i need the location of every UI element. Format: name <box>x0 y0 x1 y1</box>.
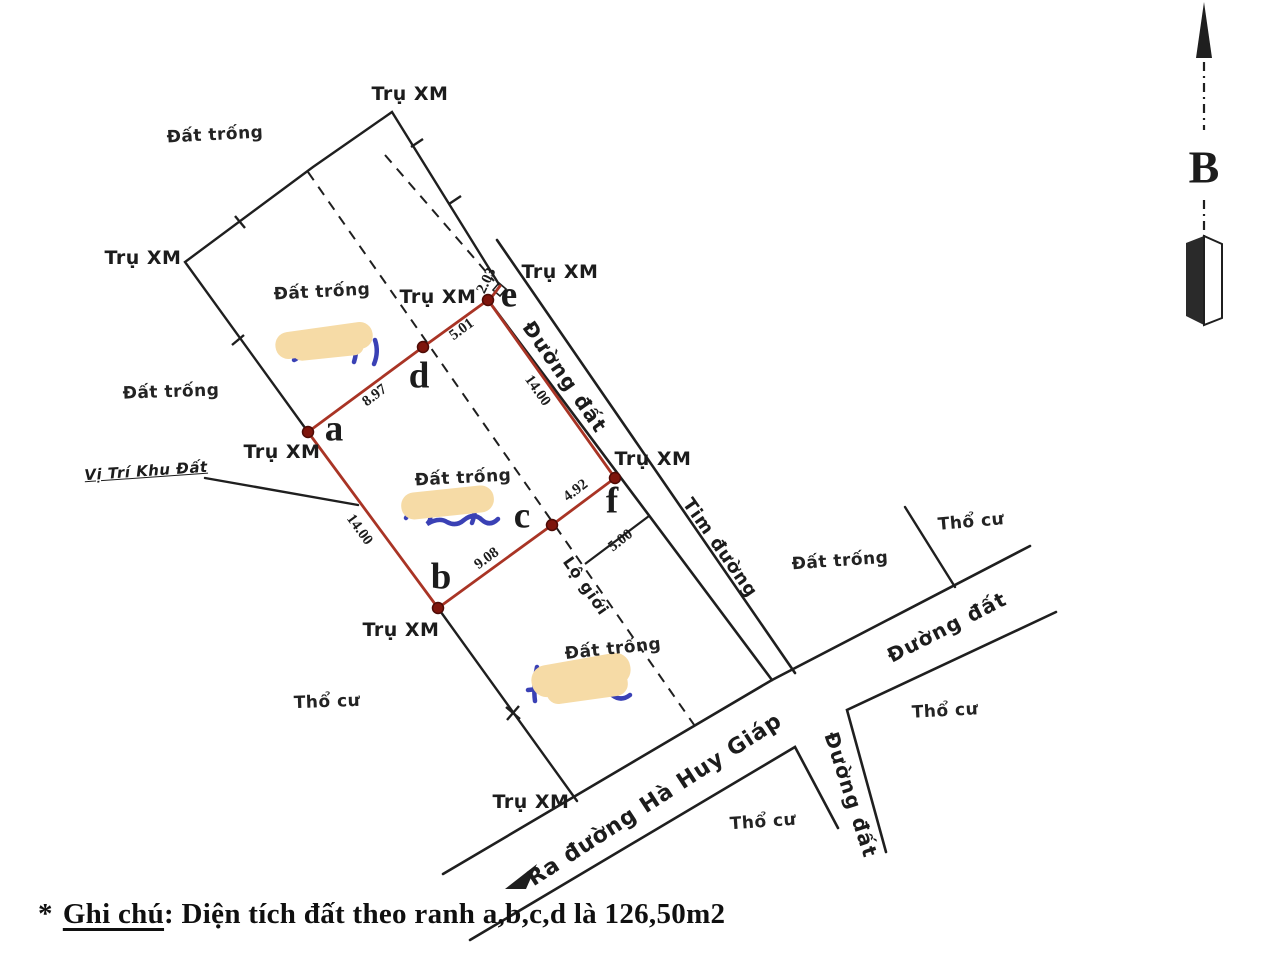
note: *Ghi chú: Diện tích đất theo ranh a,b,c,… <box>38 898 725 931</box>
post-label-top: Trụ XM <box>372 83 449 105</box>
post-label-west: Trụ XM <box>105 247 182 269</box>
north-flag-light <box>1204 236 1222 325</box>
point-label-c: c <box>514 498 530 535</box>
point-label-d: d <box>409 358 430 395</box>
post-label-mid: Trụ XM <box>400 286 477 308</box>
survey-sketch-page: Trụ XM Trụ XM Trụ XM Trụ XM Trụ XM Trụ X… <box>0 0 1280 960</box>
point-label-b: b <box>431 559 452 596</box>
post-label-south: Trụ XM <box>493 791 570 813</box>
post-label-f: Trụ XM <box>615 448 692 470</box>
compass-north-label: B <box>1189 141 1220 194</box>
point-label-a: a <box>325 411 344 448</box>
post-label-east: Trụ XM <box>522 261 599 283</box>
residential-label-e: Thổ cư <box>911 699 978 722</box>
residential-label-sw: Thổ cư <box>293 691 360 713</box>
north-arrow-head <box>1196 2 1212 58</box>
point-label-e: e <box>501 277 517 314</box>
north-flag-dark <box>1186 236 1204 325</box>
note-bullet: * <box>38 898 53 930</box>
point-label-f: f <box>606 483 618 520</box>
post-label-a: Trụ XM <box>244 441 321 463</box>
note-body: : Diện tích đất theo ranh a,b,c,d là 126… <box>164 898 725 930</box>
vacant-label-west: Đất trống <box>122 380 219 403</box>
note-title: Ghi chú <box>63 898 164 930</box>
post-label-b: Trụ XM <box>363 619 440 641</box>
